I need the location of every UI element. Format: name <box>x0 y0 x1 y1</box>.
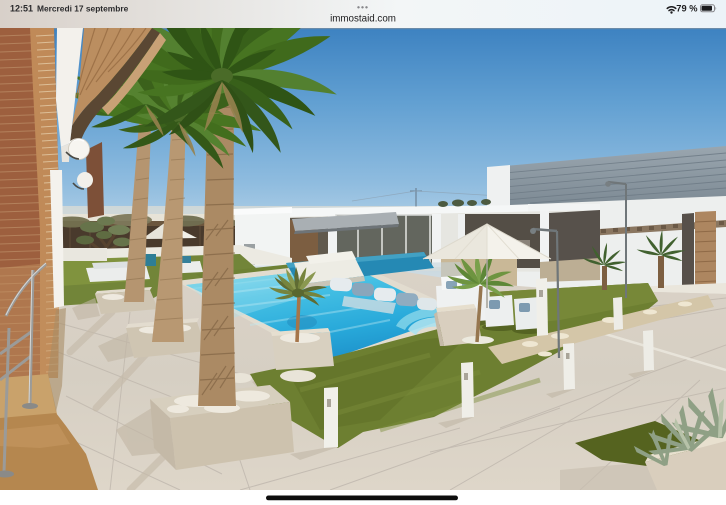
svg-text:Mercredi 17 septembre: Mercredi 17 septembre <box>37 4 129 14</box>
svg-text:immostaid.com: immostaid.com <box>330 14 396 25</box>
svg-text:79 %: 79 % <box>676 4 698 14</box>
svg-text:•••: ••• <box>357 2 369 12</box>
svg-text:12:51: 12:51 <box>10 4 33 14</box>
